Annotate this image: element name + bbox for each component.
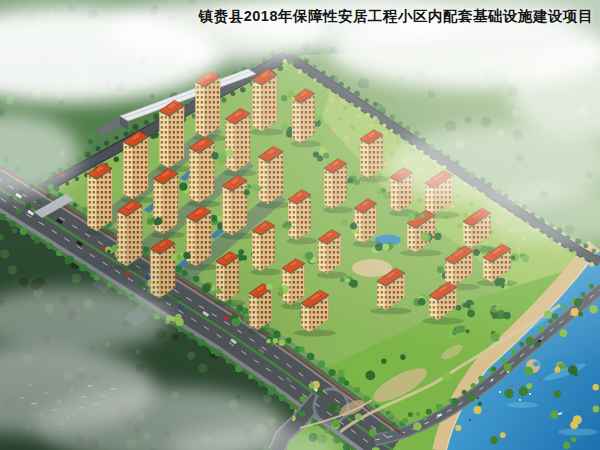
rendering-image: 镇赉县2018年保障性安居工程小区内配套基础设施建设项目 [0, 0, 600, 450]
project-title: 镇赉县2018年保障性安居工程小区内配套基础设施建设项目 [199, 7, 593, 26]
aerial-scene [0, 0, 600, 450]
corner-vignette [0, 0, 600, 450]
